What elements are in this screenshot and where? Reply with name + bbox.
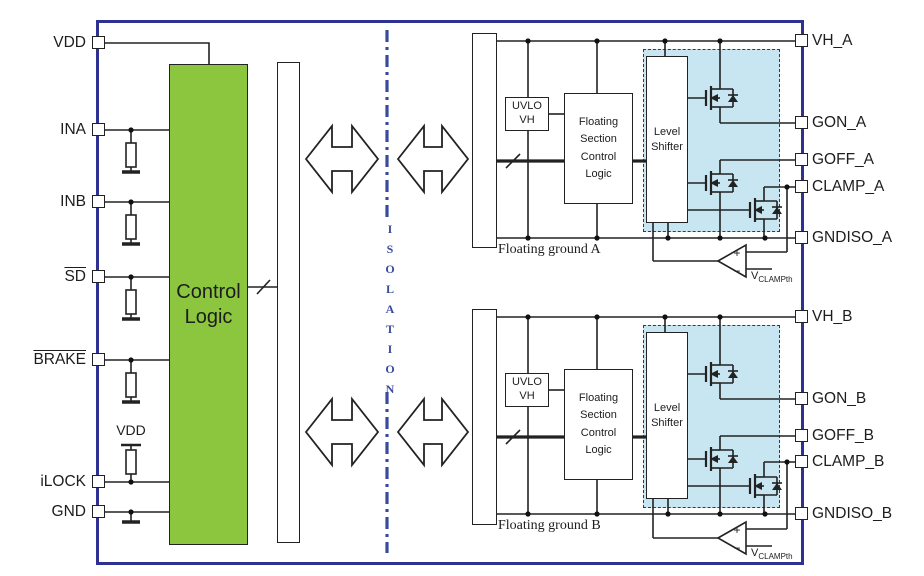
- nmos-source-fet-a-icon: [706, 86, 738, 110]
- pin-label-gnd: GND: [6, 503, 86, 521]
- pin-goff-b: [795, 429, 808, 442]
- pin-label-clamp-a: CLAMP_A: [812, 178, 884, 196]
- nmos-sink-fet-a-icon: [706, 171, 738, 195]
- resistor-icon: [126, 450, 136, 474]
- pin-ilock: [92, 475, 105, 488]
- control-logic-block: Control Logic: [169, 64, 248, 545]
- floating-ground-b-label: Floating ground B: [498, 518, 601, 534]
- pin-vdd: [92, 36, 105, 49]
- pin-gon-a: [795, 116, 808, 129]
- comparator-plus-label: +: [733, 246, 740, 260]
- floating-supply-rail-a: [472, 33, 497, 248]
- pin-vh-a: [795, 34, 808, 47]
- level-shifter-block-b: Level Shifter: [646, 332, 688, 499]
- pin-label-gndiso-a: GNDISO_A: [812, 229, 892, 247]
- comparator-icon: [718, 522, 746, 554]
- pin-label-inb: INB: [6, 193, 86, 211]
- level-shifter-block-a: Level Shifter: [646, 56, 688, 223]
- floating-section-control-logic-b: Floating Section Control Logic: [564, 369, 633, 480]
- wiring-layer: + − + −: [0, 0, 924, 576]
- comparator-minus-label: −: [733, 264, 740, 278]
- pin-gndiso-b: [795, 507, 808, 520]
- pin-label-ilock: iLOCK: [6, 473, 86, 491]
- isolation-barrier-block: [277, 62, 300, 543]
- pin-label-gon-b: GON_B: [812, 390, 866, 408]
- vclampth-label-a: VCLAMPth: [751, 270, 793, 284]
- pin-sd: [92, 270, 105, 283]
- pin-inb: [92, 195, 105, 208]
- double-arrow-icon: [398, 126, 468, 192]
- resistor-icon: [126, 373, 136, 397]
- uvlo-label-line2: VH: [519, 390, 534, 404]
- pin-goff-a: [795, 153, 808, 166]
- vclamp-sub: CLAMPth: [758, 552, 792, 561]
- comparator-plus-label: +: [733, 523, 740, 537]
- resistor-icon: [126, 143, 136, 167]
- pin-label-goff-b: GOFF_B: [812, 427, 874, 445]
- pin-label-vh-b: VH_B: [812, 308, 853, 326]
- double-arrow-icon: [306, 126, 378, 192]
- pin-clamp-b: [795, 455, 808, 468]
- uvlo-label-line2: VH: [519, 114, 534, 128]
- pin-label-ina: INA: [6, 121, 86, 139]
- clamp-comparator-a: + −: [718, 245, 746, 278]
- resistor-icon: [126, 215, 136, 239]
- uvlo-vh-block-a: UVLO VH: [505, 97, 549, 131]
- pin-clamp-a: [795, 180, 808, 193]
- resistor-icon: [126, 290, 136, 314]
- uvlo-label-line1: UVLO: [512, 100, 542, 114]
- pin-ina: [92, 123, 105, 136]
- pin-label-goff-a: GOFF_A: [812, 151, 874, 169]
- pin-gon-b: [795, 392, 808, 405]
- floating-ground-a-label: Floating ground A: [498, 242, 601, 258]
- vdd-pullup-label: VDD: [103, 422, 159, 438]
- pin-label-gndiso-b: GNDISO_B: [812, 505, 892, 523]
- floating-supply-rail-b: [472, 309, 497, 525]
- block-diagram: + − + −: [0, 0, 924, 576]
- double-arrow-icon: [306, 399, 378, 465]
- pin-gnd: [92, 505, 105, 518]
- nmos-sink-fet-b-icon: [706, 447, 738, 471]
- pin-label-vdd: VDD: [6, 34, 86, 52]
- uvlo-vh-block-b: UVLO VH: [505, 373, 549, 407]
- pin-gndiso-a: [795, 231, 808, 244]
- pin-label-gon-a: GON_A: [812, 114, 866, 132]
- uvlo-label-line1: UVLO: [512, 376, 542, 390]
- comparator-minus-label: −: [733, 541, 740, 555]
- pin-brake: [92, 353, 105, 366]
- pin-label-brake: BRAKE: [6, 351, 86, 369]
- pin-label-sd: SD: [6, 268, 86, 286]
- pin-label-vh-a: VH_A: [812, 32, 853, 50]
- nmos-clamp-fet-a-icon: [750, 198, 782, 222]
- floating-section-control-logic-a: Floating Section Control Logic: [564, 93, 633, 204]
- nmos-source-fet-b-icon: [706, 362, 738, 386]
- double-arrow-icon: [398, 399, 468, 465]
- comparator-icon: [718, 245, 746, 277]
- pin-vh-b: [795, 310, 808, 323]
- vclamp-sub: CLAMPth: [758, 275, 792, 284]
- isolation-label: ISOLATION: [379, 222, 397, 394]
- nmos-clamp-fet-b-icon: [750, 474, 782, 498]
- vclampth-label-b: VCLAMPth: [751, 547, 793, 561]
- clamp-comparator-b: + −: [718, 522, 746, 555]
- pin-label-clamp-b: CLAMP_B: [812, 453, 884, 471]
